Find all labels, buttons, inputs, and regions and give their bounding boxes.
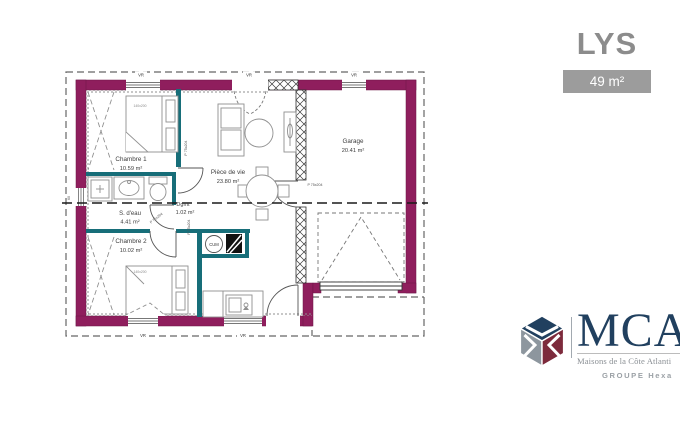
door-chambre1 <box>178 168 203 193</box>
toilet <box>149 177 167 201</box>
label-piecedevie-area: 23.80 m² <box>217 179 240 185</box>
mca-logo-cube <box>516 312 568 370</box>
door1-size-label: P 75x204 <box>184 140 188 155</box>
door4-size-label: P 75x204 <box>307 183 322 187</box>
furniture <box>88 92 404 317</box>
window-chambre1 <box>126 79 160 91</box>
water-heater-label: CUM <box>209 242 219 247</box>
bed1-size-label: 140x200 <box>133 104 146 108</box>
garage-door-swing <box>318 213 404 282</box>
desk <box>284 112 296 152</box>
label-sdeau-area: 4.41 m² <box>120 220 139 226</box>
brand-divider <box>571 317 572 358</box>
brand-rule <box>577 353 680 354</box>
label-chambre2-name: Chambre 2 <box>115 238 147 245</box>
sink-vanity <box>114 177 144 199</box>
door3-size-label: P 75x204 <box>187 219 191 234</box>
label-chambre2-area: 10.02 m² <box>120 248 143 254</box>
vr-tag-5: VR <box>240 333 246 338</box>
brand-initials: MCA <box>577 307 680 355</box>
label-chambre1-name: Chambre 1 <box>115 156 147 163</box>
vr-tag-4: VR <box>140 333 146 338</box>
label-garage-name: Garage <box>342 138 364 145</box>
wardrobe-chambre2 <box>88 237 114 315</box>
entrance-opening <box>266 315 300 327</box>
wardrobe-chambre1 <box>88 92 114 170</box>
brand-group-name: GROUPE Hexa <box>602 371 673 380</box>
vr-tag-2: VR <box>246 73 252 78</box>
sofa <box>218 104 244 156</box>
round-rug <box>245 119 273 147</box>
model-name: LYS <box>563 26 651 62</box>
window-garage <box>342 79 366 91</box>
label-dgmt-area: 1.02 m² <box>176 210 195 216</box>
area-badge: 49 m² <box>563 70 651 93</box>
dining-table <box>238 167 289 220</box>
brand-tagline: Maisons de la Côte Atlanti <box>577 356 671 366</box>
door-entrance <box>267 285 298 316</box>
water-heater: CUM <box>206 234 243 253</box>
label-sdeau-name: S. d'eau <box>119 211 141 217</box>
label-dgmt-name: Dgmt <box>176 202 190 208</box>
label-piecedevie-name: Pièce de vie <box>211 169 246 176</box>
garage-door <box>320 282 402 290</box>
label-garage-area: 20.41 m² <box>342 148 365 154</box>
window-chambre2 <box>128 315 158 327</box>
shower <box>88 177 112 201</box>
left-window-label: 60 <box>67 196 71 200</box>
vr-tag-1: VR <box>138 73 144 78</box>
label-chambre1-area: 10.59 m² <box>120 166 143 172</box>
vr-tag-3: VR <box>351 73 357 78</box>
page: { "header": { "model": "LYS", "area": "4… <box>0 0 680 425</box>
door-chambre2 <box>150 231 176 257</box>
bed2-size-label: 140x200 <box>133 270 146 274</box>
kitchen-counter <box>203 291 263 317</box>
